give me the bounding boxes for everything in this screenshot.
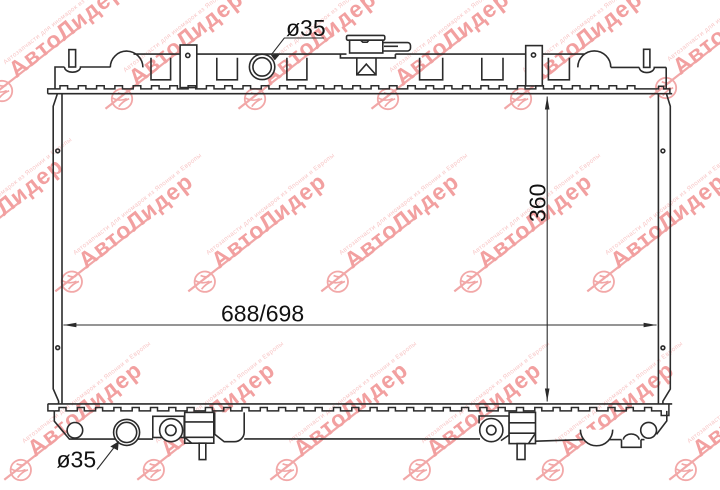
svg-text:ø35: ø35 [57, 447, 97, 473]
svg-text:360: 360 [525, 184, 551, 222]
svg-text:688/698: 688/698 [221, 301, 304, 327]
svg-text:ø35: ø35 [286, 15, 326, 41]
